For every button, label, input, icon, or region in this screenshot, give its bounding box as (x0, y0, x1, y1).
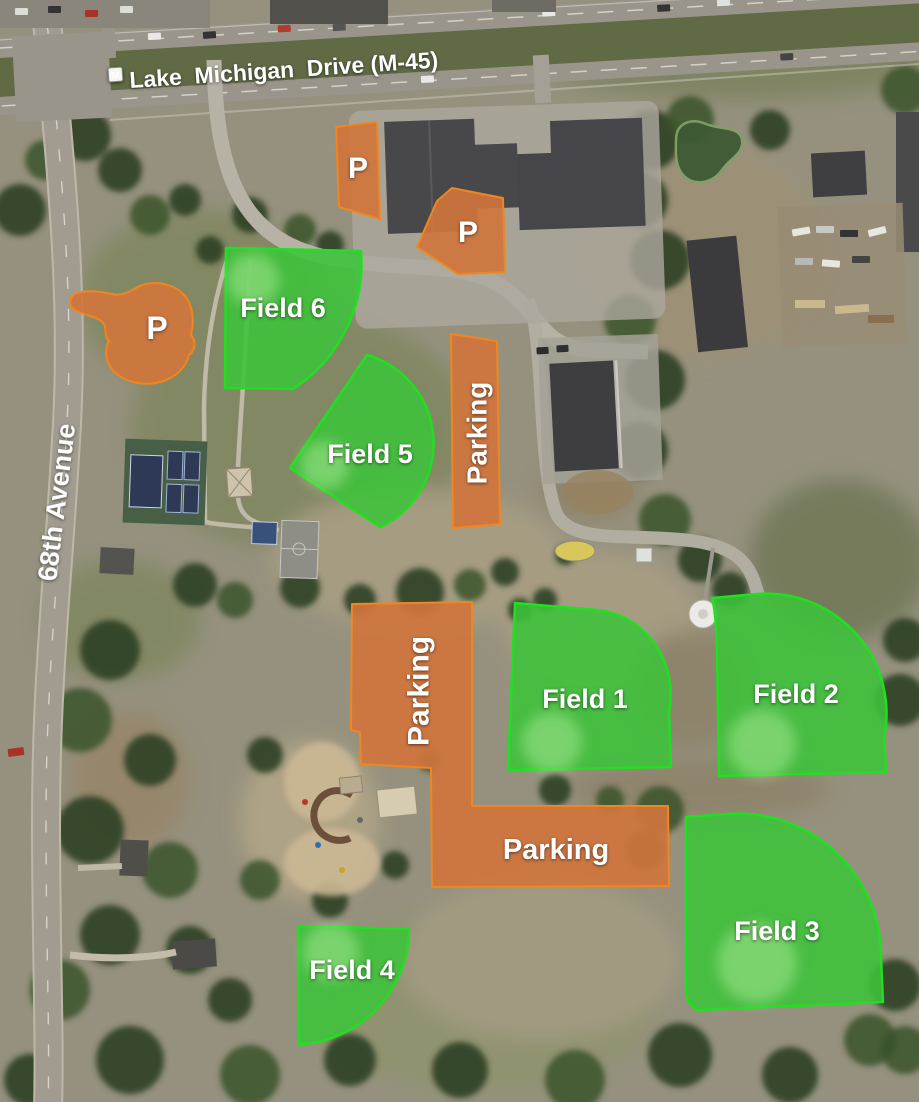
parking-p-building-east-label: P (458, 216, 478, 249)
park-map: M Lake Michigan Drive (M-45) 68th Avenue… (0, 0, 919, 1102)
route-shield-letter: M (111, 70, 120, 82)
field-2-label: Field 2 (753, 679, 839, 709)
field-1-label: Field 1 (542, 684, 628, 714)
tennis-courts (123, 439, 208, 526)
splash-pad (252, 522, 278, 545)
truck-yard (778, 203, 908, 347)
field-5-label: Field 5 (327, 439, 413, 469)
parking-p-north-label: P (348, 152, 368, 185)
basketball-court (280, 520, 319, 578)
route-shield-icon: M (108, 67, 123, 82)
north-building (492, 0, 556, 12)
dirt-patch (563, 470, 633, 514)
top-left-lot (0, 0, 210, 28)
field-6-label: Field 6 (240, 293, 326, 323)
parking-lot-main-label: Parking (403, 636, 436, 746)
field-4-label: Field 4 (309, 955, 395, 985)
aerial-map-canvas: M Lake Michigan Drive (M-45) 68th Avenue… (0, 0, 919, 1102)
field-3-label: Field 3 (734, 916, 820, 946)
parking-strip-central-label: Parking (462, 382, 493, 485)
parking-p-west-label: P (146, 310, 167, 346)
parking-lot-south-label: Parking (503, 834, 609, 866)
northeast-building (811, 151, 867, 198)
top-strip-building (270, 0, 388, 24)
pavilion (226, 467, 253, 498)
intersection (12, 31, 112, 122)
